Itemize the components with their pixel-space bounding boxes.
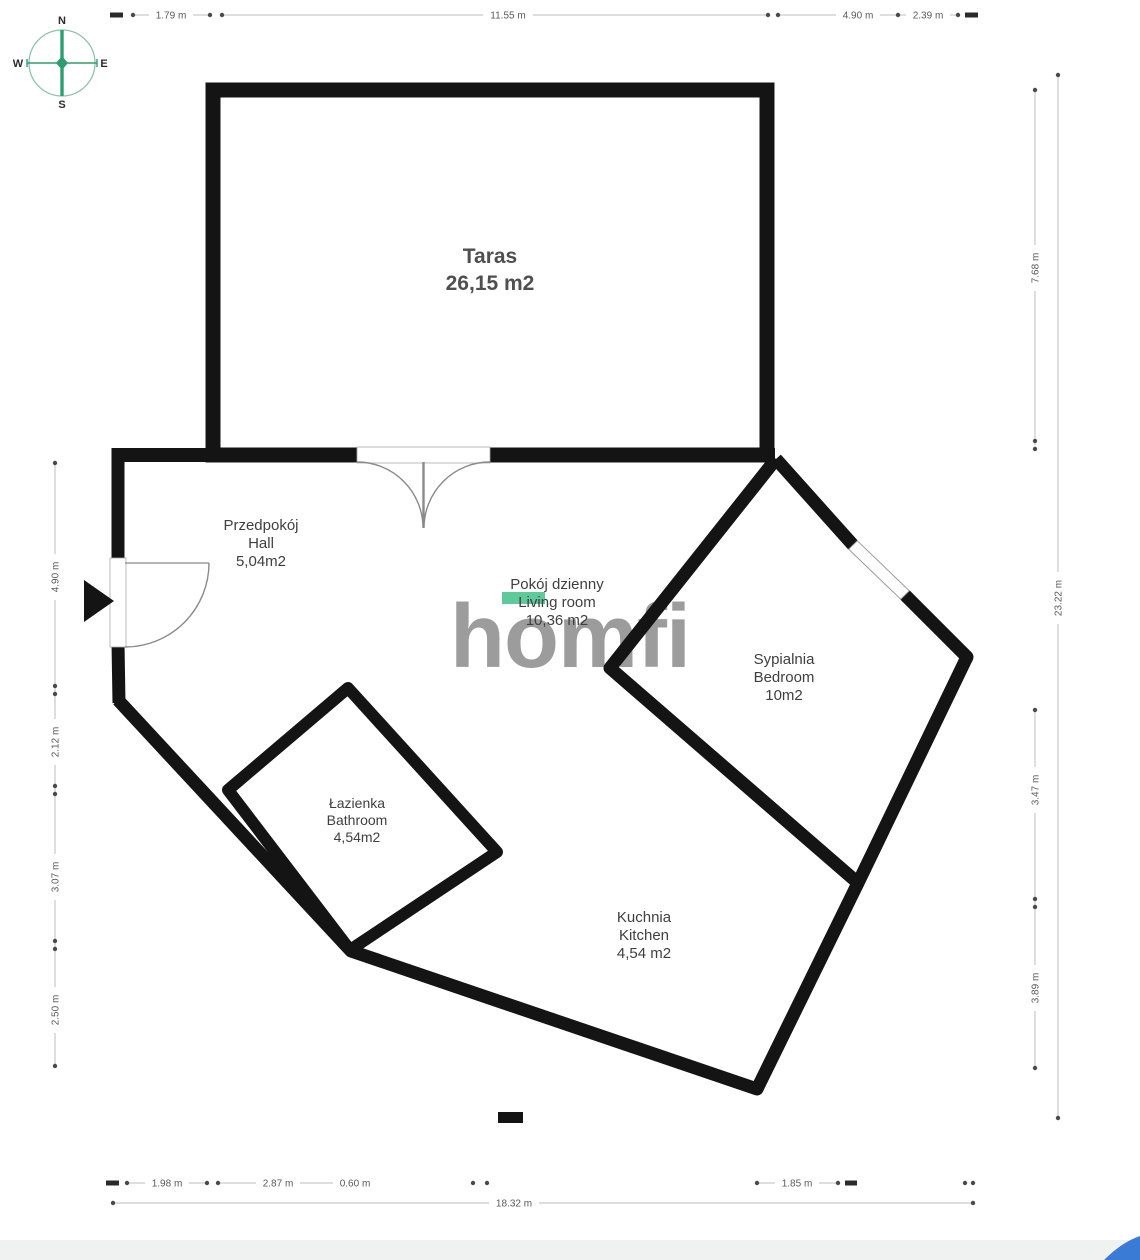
dim-left-2: 2.12 m: [49, 719, 62, 765]
bathroom-name-pl: Łazienka: [329, 795, 385, 811]
dim-top-2-text: 11.55 m: [490, 11, 525, 22]
threshold-mark: [498, 1112, 523, 1123]
living-area: 10,36 m2: [526, 612, 589, 629]
entrance-door-swing: [125, 563, 209, 647]
dim-bottom-1-text: 1.98 m: [152, 1179, 183, 1190]
bedroom-area: 10m2: [765, 687, 803, 704]
terrace-door-opening: [357, 447, 490, 463]
footer-strip: [0, 1240, 1140, 1260]
hall-name-pl: Przedpokój: [223, 517, 298, 534]
terrace-door-right-swing: [424, 462, 490, 528]
compass-label-s: S: [58, 99, 65, 111]
dim-bottom-4-text: 1.85 m: [782, 1179, 813, 1190]
terrace-name: Taras: [463, 245, 517, 268]
entrance-arrow: [84, 580, 114, 622]
terrace-double-door: [357, 447, 490, 528]
dim-bottom-total-text: 18.32 m: [496, 1199, 532, 1210]
dim-bottom-4: 1.85 m: [775, 1177, 819, 1190]
kitchen-area: 4,54 m2: [617, 945, 671, 962]
dim-top-1: 1.79 m: [149, 9, 193, 22]
bedroom-wall-upper-right: [776, 459, 853, 545]
dim-bottom-2: 2.87 m: [256, 1177, 300, 1190]
bathroom-name-en: Bathroom: [327, 812, 388, 828]
compass-label-e: E: [100, 58, 107, 70]
dim-left-3: 3.07 m: [49, 854, 62, 900]
entrance-door-opening: [110, 558, 126, 647]
bedroom-name-en: Bedroom: [754, 669, 815, 686]
dim-right-total-text: 23.22 m: [1054, 580, 1065, 616]
hall-name-en: Hall: [248, 535, 274, 552]
bedroom-name-pl: Sypialnia: [754, 651, 816, 668]
dim-top-1-text: 1.79 m: [156, 11, 187, 22]
dim-right-1-text: 7.68 m: [1031, 253, 1042, 284]
dim-right-3: 3.89 m: [1029, 965, 1042, 1011]
living-name-pl: Pokój dzienny: [510, 576, 604, 593]
floorplan-page: homfi N S W E: [0, 0, 1140, 1260]
bathroom-label: Łazienka Bathroom 4,54m2: [327, 795, 388, 845]
dim-right-1: 7.68 m: [1029, 245, 1042, 291]
dim-bottom-3: 0.60 m: [333, 1177, 377, 1190]
dim-left-1-text: 4.90 m: [51, 562, 62, 593]
bedroom-label: Sypialnia Bedroom 10m2: [754, 651, 816, 704]
dim-left-2-text: 2.12 m: [51, 727, 62, 758]
living-name-en: Living room: [518, 594, 596, 611]
dim-top-3-text: 4.90 m: [843, 11, 874, 22]
dim-top-4: 2.39 m: [906, 9, 950, 22]
hall-area: 5,04m2: [236, 553, 286, 570]
compass: N S W E: [13, 15, 108, 111]
floorplan-svg: homfi N S W E: [0, 0, 1140, 1260]
dim-top-3: 4.90 m: [836, 9, 880, 22]
dim-bottom-3-text: 0.60 m: [340, 1179, 371, 1190]
dim-bottom-total: 18.32 m: [489, 1197, 539, 1210]
left-wall-lower: [118, 643, 119, 703]
entrance-door: [84, 558, 209, 647]
dim-left-1: 4.90 m: [49, 554, 62, 600]
bathroom-area: 4,54m2: [334, 829, 381, 845]
terrace-area: 26,15 m2: [446, 272, 535, 295]
dim-right-2-text: 3.47 m: [1031, 775, 1042, 806]
compass-center-diamond: [56, 56, 68, 70]
kitchen-name-pl: Kuchnia: [617, 909, 672, 926]
dim-top-4-text: 2.39 m: [913, 11, 944, 22]
dim-left-3-text: 3.07 m: [51, 862, 62, 893]
dim-top-2: 11.55 m: [483, 9, 533, 22]
kitchen-name-en: Kitchen: [619, 927, 669, 944]
compass-label-w: W: [13, 58, 24, 70]
dim-bottom-2-text: 2.87 m: [263, 1179, 294, 1190]
kitchen-label: Kuchnia Kitchen 4,54 m2: [617, 909, 672, 962]
dim-right-3-text: 3.89 m: [1031, 973, 1042, 1004]
terrace-door-left-swing: [357, 462, 423, 528]
dim-right-2: 3.47 m: [1029, 767, 1042, 813]
dim-right-total: 23.22 m: [1052, 572, 1065, 624]
hall-label: Przedpokój Hall 5,04m2: [223, 517, 298, 570]
bedroom-window: [849, 541, 910, 599]
terrace-label: Taras 26,15 m2: [446, 245, 535, 295]
compass-label-n: N: [58, 15, 66, 27]
dim-bottom-1: 1.98 m: [145, 1177, 189, 1190]
dim-left-4: 2.50 m: [49, 987, 62, 1033]
dim-left-4-text: 2.50 m: [51, 995, 62, 1026]
